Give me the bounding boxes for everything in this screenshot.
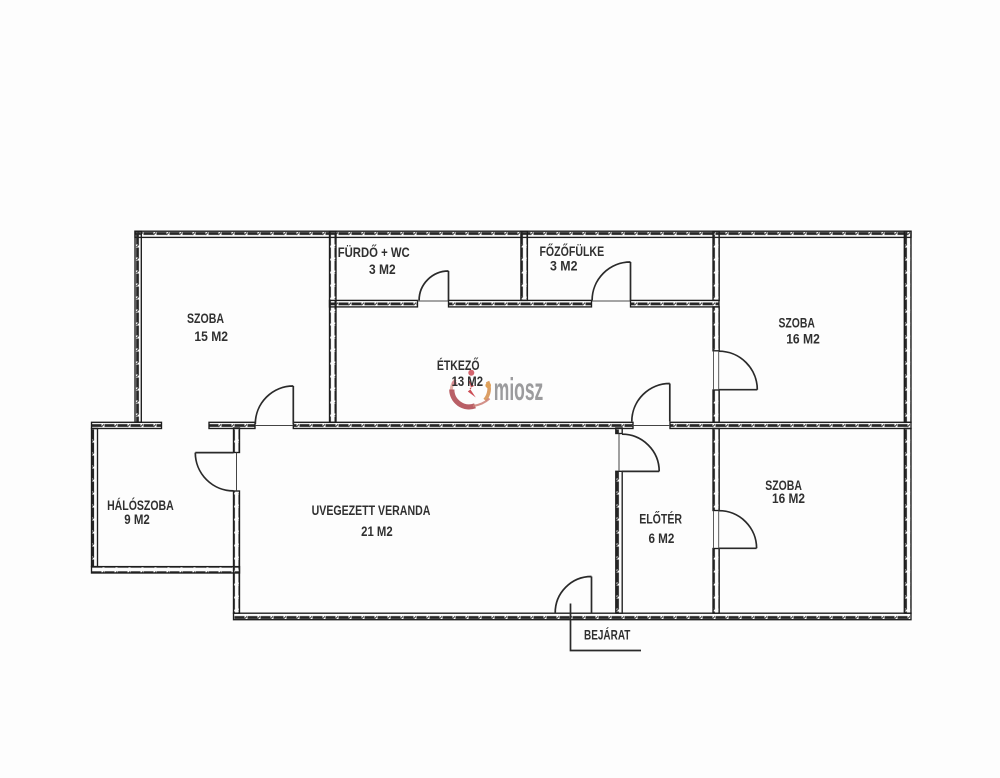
svg-text:21 M2: 21 M2 (361, 523, 392, 539)
svg-text:9 M2: 9 M2 (124, 511, 150, 527)
svg-text:3 M2: 3 M2 (550, 258, 577, 274)
svg-text:16 M2: 16 M2 (772, 490, 805, 506)
svg-text:ÉTKEZŐ: ÉTKEZŐ (437, 357, 480, 374)
svg-text:SZOBA: SZOBA (779, 315, 815, 331)
svg-text:UVEGEZETT VERANDA: UVEGEZETT VERANDA (312, 503, 431, 519)
svg-text:ELŐTÉR: ELŐTÉR (639, 510, 682, 527)
svg-text:3 M2: 3 M2 (369, 261, 396, 277)
svg-text:13 M2: 13 M2 (452, 373, 483, 389)
svg-text:FÜRDŐ + WC: FÜRDŐ + WC (338, 244, 410, 260)
svg-text:15 M2: 15 M2 (194, 328, 228, 344)
svg-text:BEJÁRAT: BEJÁRAT (584, 626, 631, 643)
svg-text:16 M2: 16 M2 (786, 331, 820, 347)
svg-text:SZOBA: SZOBA (187, 310, 224, 326)
svg-text:6 M2: 6 M2 (648, 530, 674, 546)
svg-text:miosz: miosz (494, 371, 544, 407)
